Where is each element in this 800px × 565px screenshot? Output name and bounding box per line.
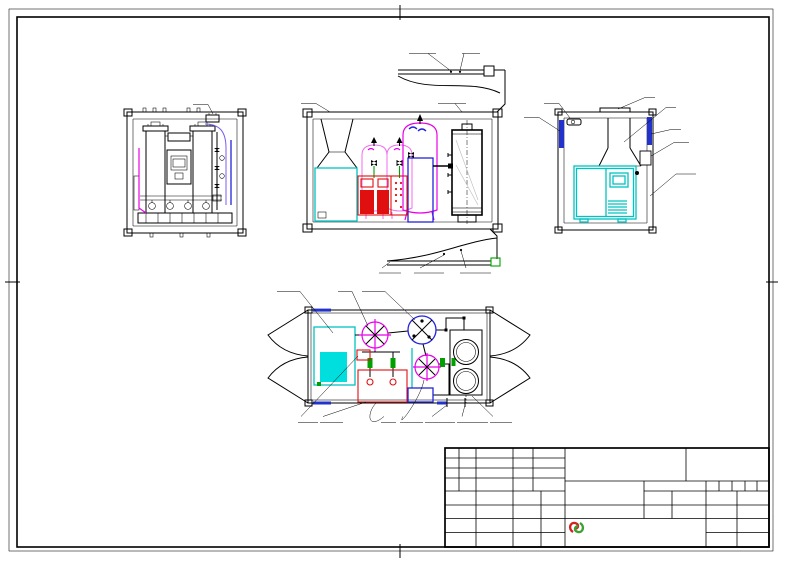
title-block [445,448,769,547]
leader-line [432,405,447,417]
power-box [640,151,651,165]
company-logo [570,523,583,532]
valve [391,358,396,368]
nitrogen-tank [448,120,482,224]
leader-line [650,174,676,196]
plan-n2-buffer [408,316,436,344]
door-swings [268,310,530,403]
bottom-utility-run [379,229,500,273]
right-end-view [524,98,696,234]
cad-drawing-sheet [0,0,800,565]
valve-manifold [140,196,222,209]
leader-line [370,403,384,422]
leader-line [462,405,465,417]
plan-air-tank [359,319,391,351]
magenta-pipe [139,148,146,213]
break-curve [387,238,497,261]
roof-vent [600,108,630,112]
exhaust-hood [317,119,357,168]
adsorber-tower-b [190,122,215,213]
side-elevation-view [301,104,502,233]
compressor-enclosure [315,168,357,221]
plan-compressor [314,327,355,386]
break-curve [398,76,500,93]
leader-line [385,292,415,321]
left-end-view [124,105,246,238]
adsorber-tower-a [143,122,168,213]
side-panel [134,176,139,210]
roof-studs [143,108,210,237]
top-utility-run [398,54,505,113]
leader-line [428,54,451,72]
leader-line [539,118,560,132]
leader-line [208,105,213,115]
screw-compressor [574,166,636,222]
sheet-frame [5,5,778,558]
top-manifold [168,133,190,141]
right-piping [205,124,231,210]
air-duct [599,118,641,166]
leader-line [651,143,674,157]
plan-air-buffer [413,353,441,381]
leader-line [460,54,464,71]
leader-line [455,104,462,113]
electric-cabinet [358,176,407,215]
leader-line [651,130,671,135]
plan-view [268,292,530,423]
leader-line [618,98,645,110]
leader-line [316,104,330,113]
louver-strip-left [559,120,564,148]
valve [440,358,445,367]
leader-line [352,292,368,327]
control-cabinet [167,150,191,184]
lamp-fixture [567,119,581,125]
muffler [206,115,219,122]
leader-line [559,104,570,119]
plan-electric-box [358,370,407,402]
valve [452,358,456,366]
drawing-canvas [0,0,800,565]
